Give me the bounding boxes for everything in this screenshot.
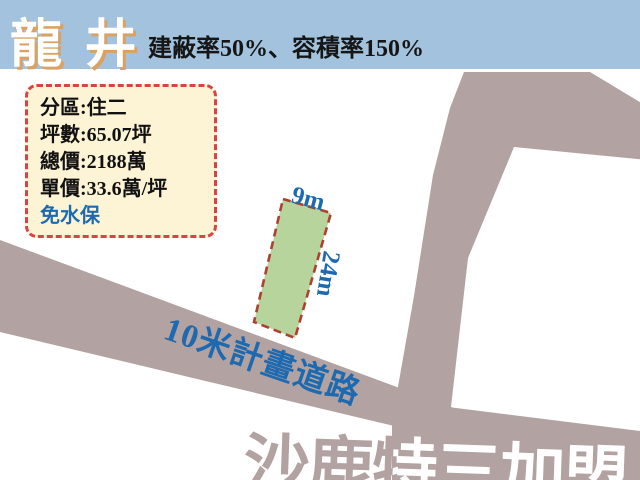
listing-flyer: 沙鹿特三加盟 沙鹿特三加盟 9m 24m 10米計畫道路 龍 井 建蔽率50%、…: [0, 0, 640, 480]
info-unit-price: 單價:33.6萬/坪: [40, 176, 202, 203]
zoning-ratios-subtitle: 建蔽率50%、容積率150%: [148, 28, 424, 63]
info-zoning: 分區:住二: [40, 95, 202, 122]
road-upper-right: [392, 72, 640, 442]
info-total-price: 總價:2188萬: [40, 149, 202, 176]
info-no-water-conservation: 免水保: [40, 203, 202, 229]
district-title: 龍 井: [10, 2, 140, 77]
header-banner: 龍 井 建蔽率50%、容積率150%: [0, 0, 640, 69]
property-info-box: 分區:住二 坪數:65.07坪 總價:2188萬 單價:33.6萬/坪 免水保: [25, 84, 217, 238]
info-area: 坪數:65.07坪: [40, 122, 202, 149]
